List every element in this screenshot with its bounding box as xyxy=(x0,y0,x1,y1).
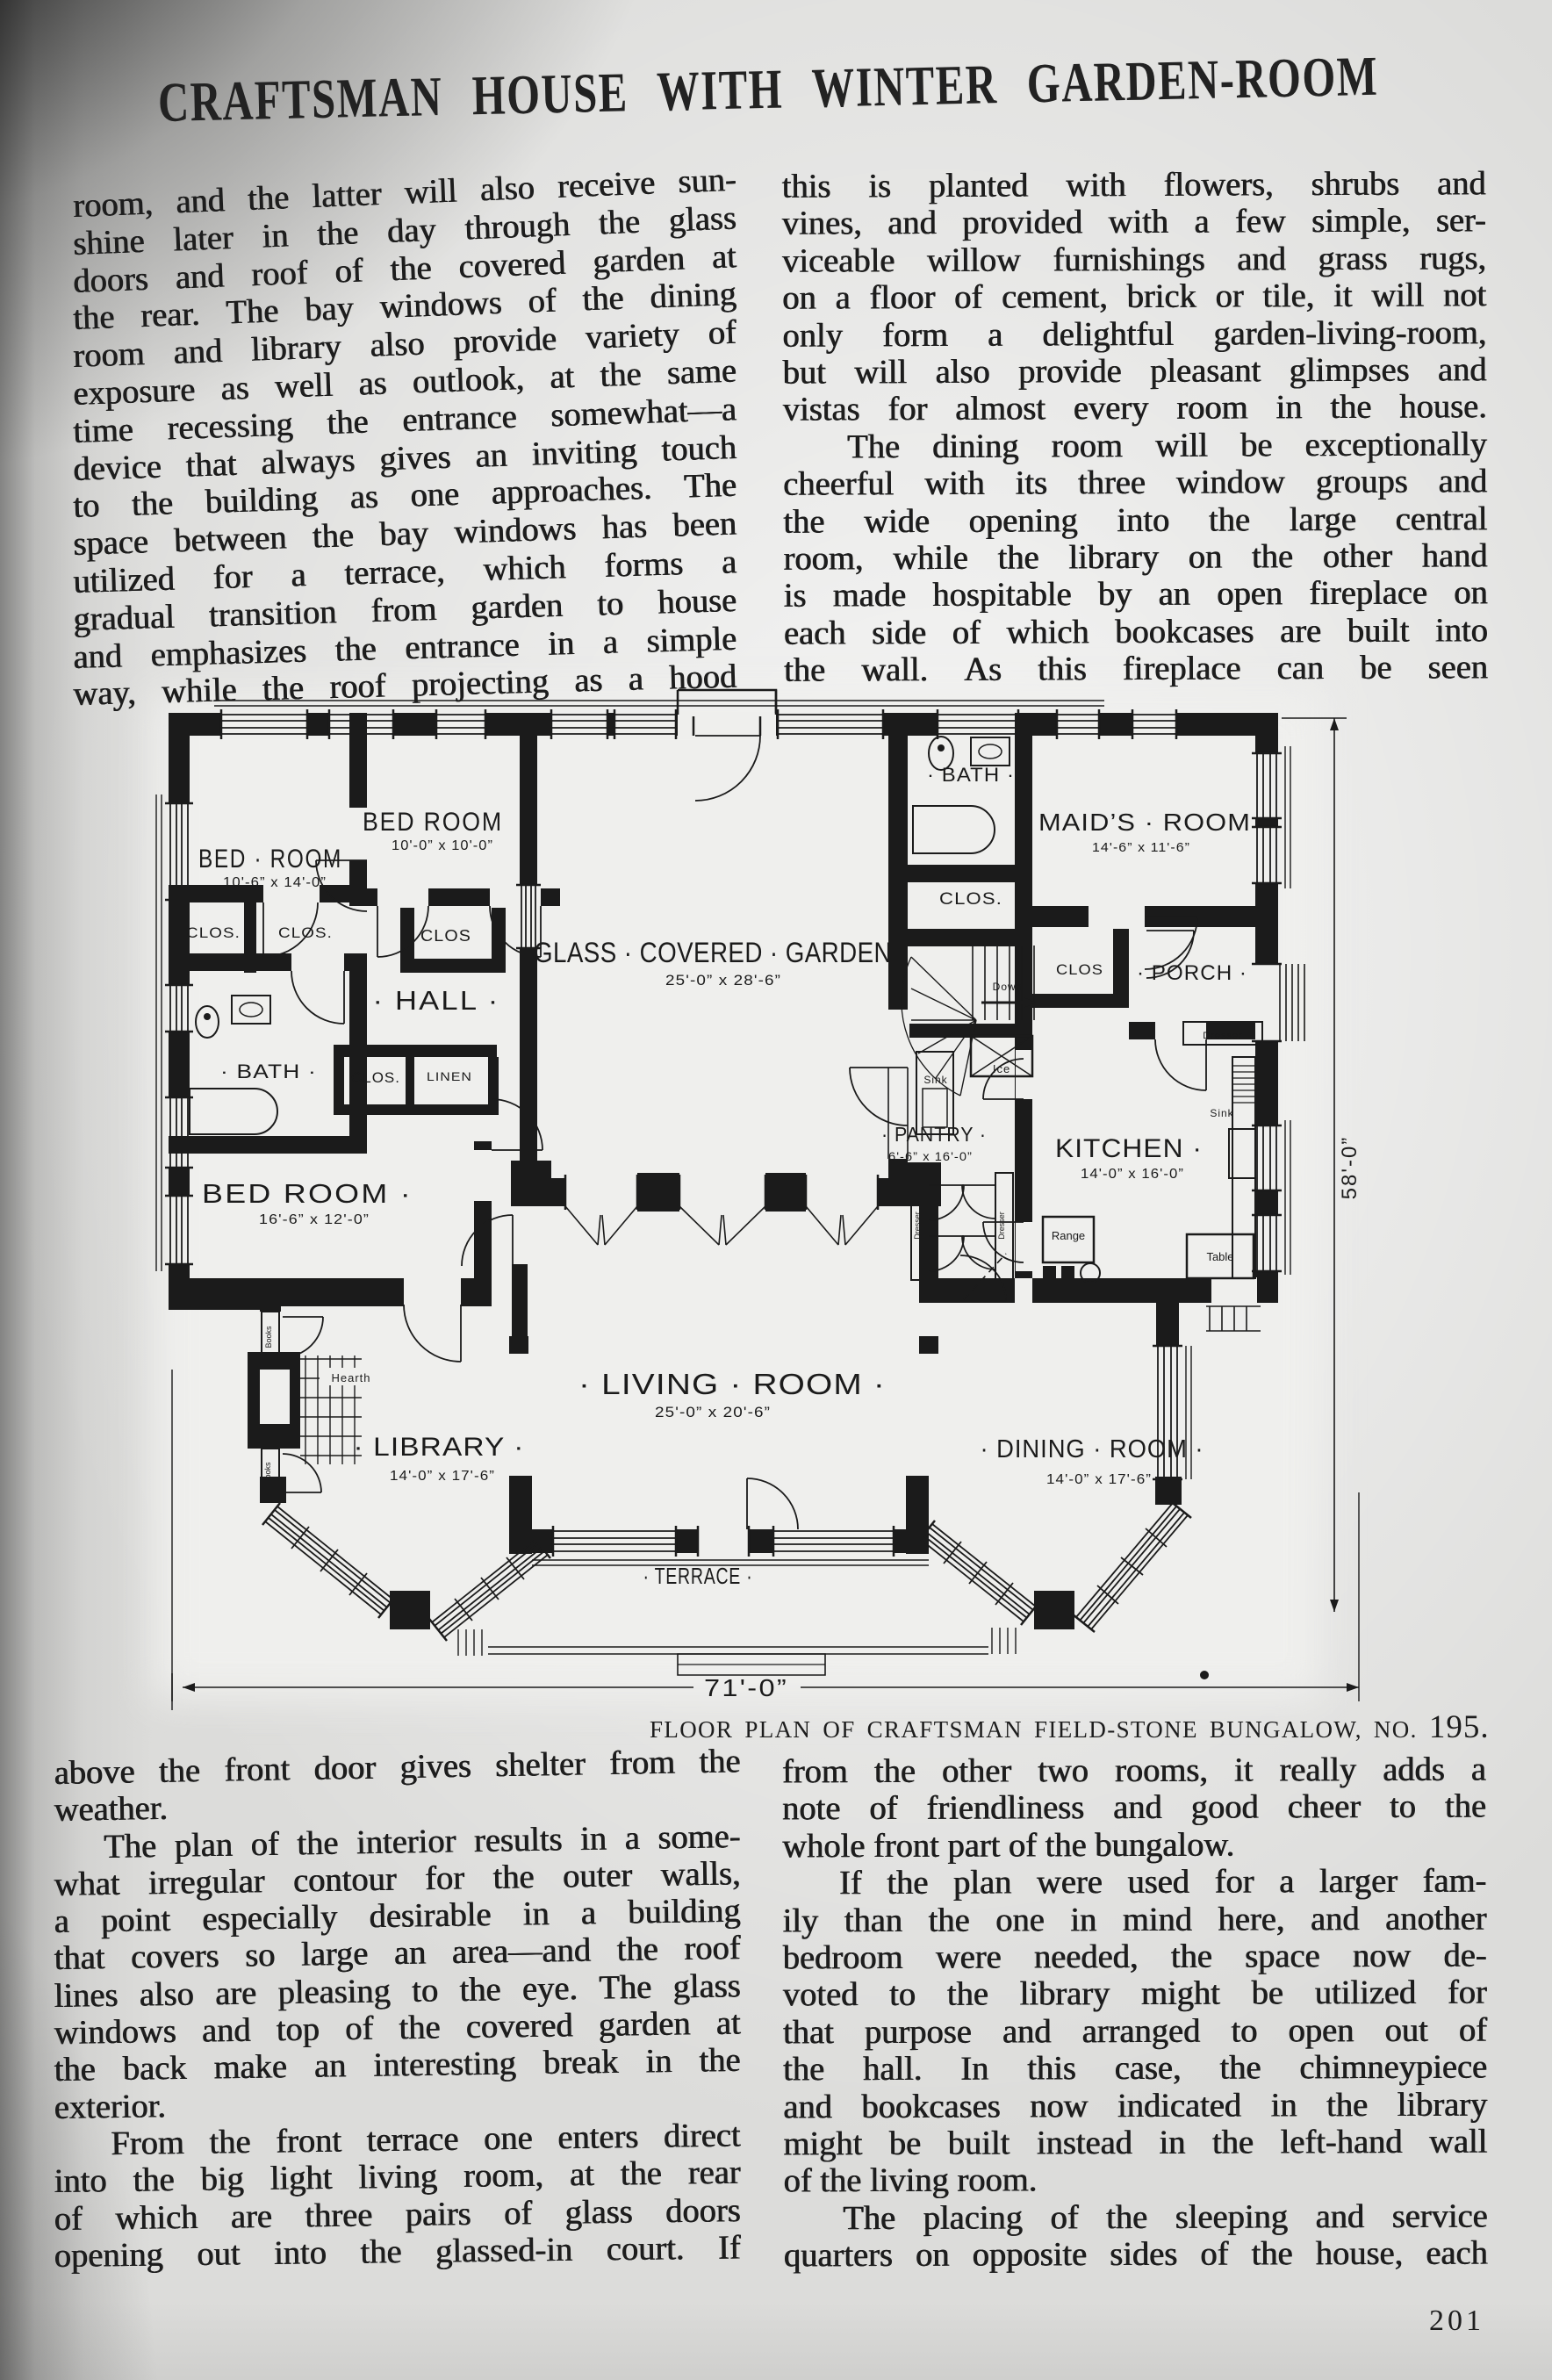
svg-text:Ice: Ice xyxy=(993,1062,1010,1075)
svg-text:Sink: Sink xyxy=(1210,1107,1233,1119)
svg-text:Range: Range xyxy=(1052,1229,1085,1242)
svg-text:25'-0” x 28'-6”: 25'-0” x 28'-6” xyxy=(665,972,781,989)
svg-text:BED ROOM: BED ROOM xyxy=(363,808,503,837)
svg-text:Dresser: Dresser xyxy=(997,1212,1006,1240)
svg-text:CLOS.: CLOS. xyxy=(939,890,1002,909)
svg-text:14'-0” x 17'-6”: 14'-0” x 17'-6” xyxy=(1046,1472,1152,1487)
svg-text:14'-0” x 17'-6”: 14'-0” x 17'-6” xyxy=(390,1469,495,1484)
svg-text:Books: Books xyxy=(264,1326,273,1348)
svg-text:10'-6” x 14'-0”: 10'-6” x 14'-0” xyxy=(223,875,327,890)
svg-text:· BATH ·: · BATH · xyxy=(220,1061,317,1082)
svg-text:10'-0” x 10'-0”: 10'-0” x 10'-0” xyxy=(392,838,493,853)
svg-text:· BATH ·: · BATH · xyxy=(927,764,1015,786)
svg-text:58'-0”: 58'-0” xyxy=(1338,1136,1362,1200)
svg-text:16'-6” x 12'-0”: 16'-6” x 12'-0” xyxy=(259,1212,370,1227)
svg-text:· DINING · ROOM ·: · DINING · ROOM · xyxy=(981,1435,1204,1463)
svg-text:CLOS: CLOS xyxy=(420,927,471,945)
svg-text:CLOS.: CLOS. xyxy=(278,924,333,941)
svg-text:KITCHEN ·: KITCHEN · xyxy=(1055,1134,1203,1163)
svg-text:MAID’S · ROOM: MAID’S · ROOM xyxy=(1038,809,1251,836)
svg-text:Hearth: Hearth xyxy=(331,1371,370,1384)
svg-text:· PANTRY ·: · PANTRY · xyxy=(881,1123,987,1146)
svg-text:Table: Table xyxy=(1206,1250,1233,1263)
svg-text:LINEN: LINEN xyxy=(427,1069,472,1083)
svg-text:· PORCH ·: · PORCH · xyxy=(1137,961,1247,985)
svg-text:6'-6” x 16'-0”: 6'-6” x 16'-0” xyxy=(888,1149,973,1163)
svg-text:BED · ROOM: BED · ROOM xyxy=(198,845,342,874)
svg-text:Dresser: Dresser xyxy=(1203,1031,1243,1041)
svg-text:· TERRACE ·: · TERRACE · xyxy=(643,1563,753,1589)
svg-text:· HALL ·: · HALL · xyxy=(373,985,500,1016)
svg-text:CLOS.: CLOS. xyxy=(351,1069,400,1086)
svg-text:CLOS: CLOS xyxy=(1056,961,1103,978)
svg-text:CLOS.: CLOS. xyxy=(186,924,241,941)
svg-text:Sink: Sink xyxy=(923,1074,947,1086)
svg-text:Dresser: Dresser xyxy=(913,1212,922,1240)
svg-text:71'-0”: 71'-0” xyxy=(704,1674,788,1701)
svg-text:GLASS · COVERED · GARDEN: GLASS · COVERED · GARDEN xyxy=(534,937,892,968)
svg-text:14'-0” x 16'-0”: 14'-0” x 16'-0” xyxy=(1081,1167,1184,1182)
svg-text:BED ROOM ·: BED ROOM · xyxy=(202,1178,413,1209)
svg-text:· LIVING · ROOM ·: · LIVING · ROOM · xyxy=(578,1368,886,1400)
svg-text:Down: Down xyxy=(993,981,1024,993)
svg-text:25'-0” x 20'-6”: 25'-0” x 20'-6” xyxy=(655,1404,771,1420)
svg-text:· LIBRARY ·: · LIBRARY · xyxy=(354,1433,525,1462)
svg-text:14'-6” x 11'-6”: 14'-6” x 11'-6” xyxy=(1092,840,1190,855)
